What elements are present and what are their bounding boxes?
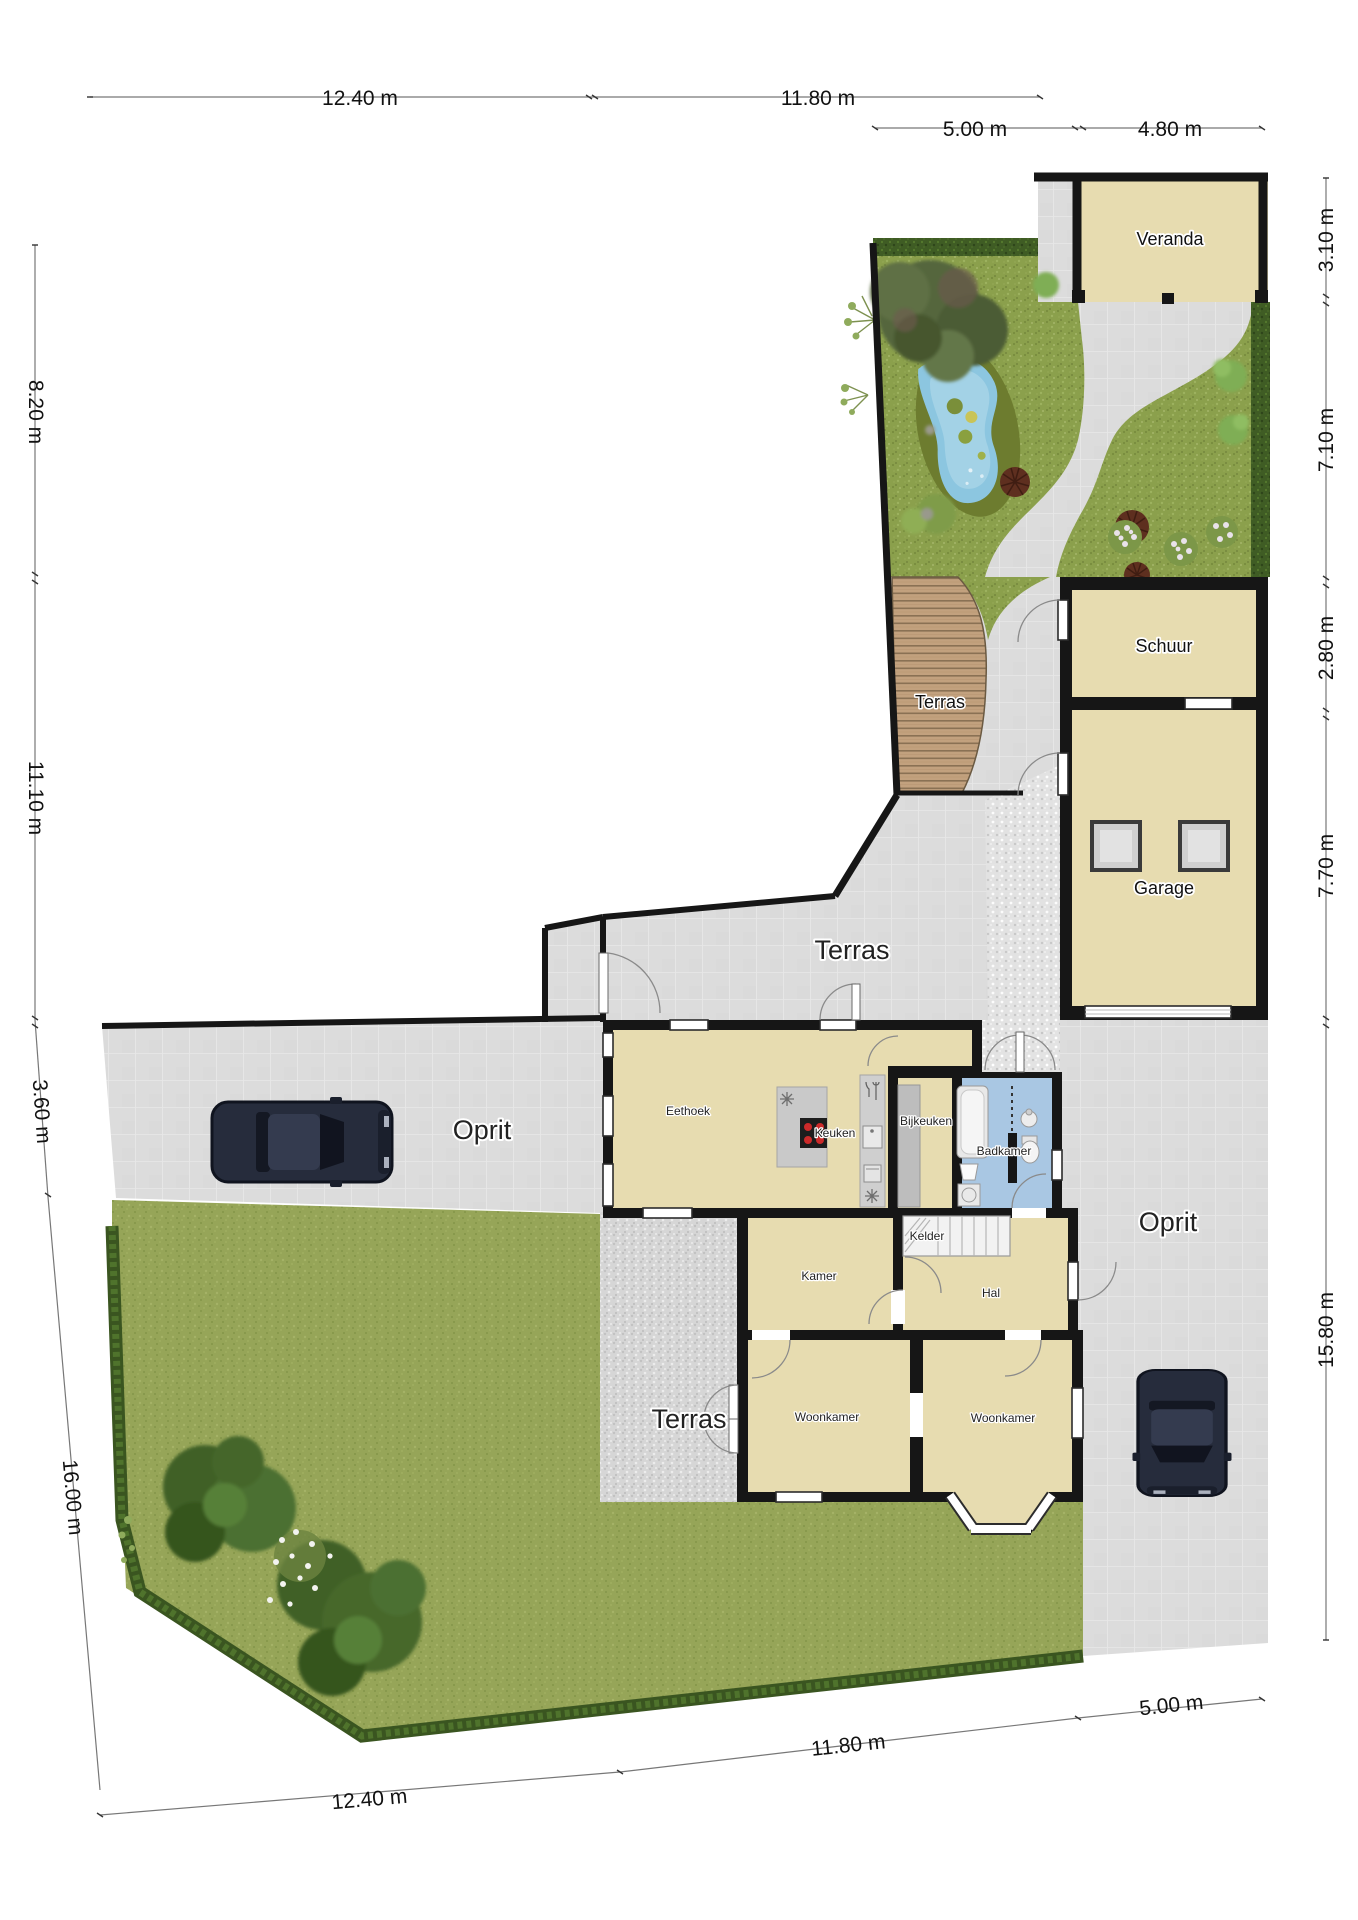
- terras-south-gravel: [600, 1212, 737, 1502]
- label-kelder: Kelder: [910, 1229, 945, 1243]
- label-oprit-west: Oprit: [453, 1115, 512, 1145]
- woonkamer-passage: [910, 1393, 923, 1437]
- dim-right-710: 7.10 m: [1315, 408, 1338, 472]
- fridge-icon: [865, 1189, 879, 1203]
- dim-right-1580: 15.80 m: [1315, 1292, 1338, 1368]
- label-keuken: Keuken: [815, 1126, 856, 1140]
- label-hal: Hal: [982, 1286, 1000, 1300]
- car-west: [212, 1097, 392, 1187]
- hedge-garden-top: [873, 238, 1038, 256]
- garage-side-door: [1058, 753, 1068, 795]
- label-kamer: Kamer: [801, 1269, 836, 1283]
- label-garage: Garage: [1134, 878, 1194, 898]
- label-bijkeuken: Bijkeuken: [900, 1114, 952, 1128]
- label-eethoek: Eethoek: [666, 1104, 711, 1118]
- dim-right-280: 2.80 m: [1315, 616, 1338, 680]
- hedge-garden-east: [1251, 302, 1270, 577]
- label-schuur: Schuur: [1135, 636, 1192, 656]
- washing-machine: [958, 1184, 980, 1206]
- label-terras-north: Terras: [814, 935, 889, 965]
- car-east: [1133, 1370, 1232, 1496]
- terras-wood-deck: [892, 577, 986, 793]
- gravel-patch: [985, 765, 1060, 1020]
- dim-top-500: 5.00 m: [943, 118, 1007, 141]
- label-terras-deck: Terras: [915, 692, 965, 712]
- label-oprit-east: Oprit: [1139, 1207, 1198, 1237]
- dim-top-1240: 12.40 m: [322, 87, 398, 110]
- bijkeuken-cabinet: [898, 1085, 920, 1207]
- dim-bottom-500: 5.00 m: [1138, 1691, 1204, 1721]
- dim-top-1180: 11.80 m: [781, 87, 855, 110]
- dim-bottom-1180: 11.80 m: [810, 1730, 886, 1761]
- label-terras-south: Terras: [651, 1404, 726, 1434]
- garage-door: [1085, 1006, 1231, 1018]
- dim-left-360: 3.60 m: [28, 1079, 55, 1145]
- label-woonkamer-left: Woonkamer: [795, 1410, 859, 1424]
- dim-left-1110: 11.10 m: [24, 761, 47, 835]
- floorplan-page: 12.40 m 11.80 m 5.00 m 4.80 m 3.10 m 7.1…: [0, 0, 1358, 1920]
- dim-right-770: 7.70 m: [1315, 834, 1338, 898]
- dim-top-480: 4.80 m: [1138, 118, 1202, 141]
- schuur-garage-window: [1185, 698, 1232, 709]
- label-woonkamer-right: Woonkamer: [971, 1411, 1035, 1425]
- label-veranda: Veranda: [1136, 229, 1204, 249]
- site-plan-svg: 12.40 m 11.80 m 5.00 m 4.80 m 3.10 m 7.1…: [0, 0, 1358, 1920]
- laundry-basket: [960, 1164, 978, 1180]
- dim-bottom-1240: 12.40 m: [331, 1785, 409, 1815]
- dishwasher-icon: [864, 1165, 881, 1182]
- dim-left-1600: 16.00 m: [58, 1459, 88, 1537]
- dim-right-310: 3.10 m: [1315, 208, 1338, 272]
- dim-left-820: 8.20 m: [24, 380, 47, 444]
- branches-west: [844, 296, 875, 411]
- schuur-door: [1058, 600, 1068, 640]
- oprit-east-paving: [1060, 1020, 1268, 1656]
- label-badkamer: Badkamer: [977, 1144, 1032, 1158]
- freezer-icon: [780, 1092, 794, 1106]
